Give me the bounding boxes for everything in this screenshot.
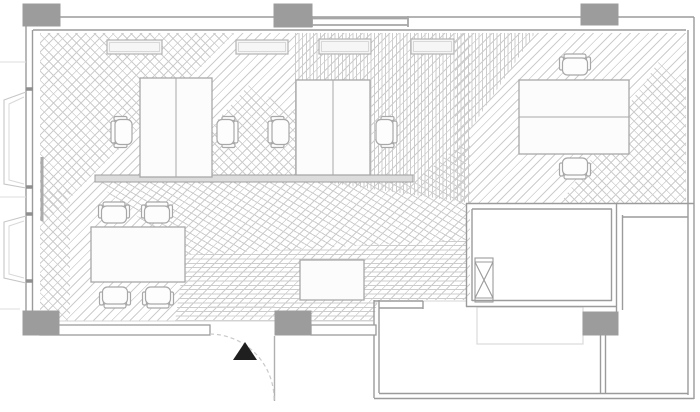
structural-column [275, 311, 311, 335]
plan-linework [0, 0, 700, 412]
chair-seat [145, 206, 170, 223]
chair-seat [376, 120, 393, 145]
stair-flight [477, 307, 583, 344]
chair-seat [272, 120, 289, 145]
chair-seat [217, 120, 234, 145]
chair-seat [146, 287, 171, 304]
structural-column [581, 4, 618, 25]
structural-column [23, 4, 60, 26]
wall-segment [311, 325, 376, 335]
task-chair [560, 54, 591, 75]
task-chair [100, 287, 131, 308]
structural-column [583, 312, 618, 335]
task-chair [217, 117, 238, 148]
office-floor-plan [0, 0, 700, 412]
entrance-door-swing-arc [210, 334, 274, 401]
task-chair [143, 287, 174, 308]
structural-column [23, 311, 59, 335]
task-chair [376, 117, 397, 148]
structural-column [274, 4, 312, 27]
chair-seat [115, 120, 132, 145]
task-chair [99, 202, 130, 223]
window-casement-outer [4, 92, 26, 188]
window-casement-outer [4, 216, 26, 283]
task-chair [142, 202, 173, 223]
chair-seat [563, 158, 588, 175]
chair-seat [102, 206, 127, 223]
task-chair [268, 117, 289, 148]
window-casement-inner [9, 221, 24, 278]
chair-seat [103, 287, 128, 304]
meeting-table [91, 227, 185, 282]
window-casement-inner [9, 97, 24, 184]
wall-segment [40, 325, 210, 335]
chair-seat [563, 58, 588, 75]
task-chair [111, 117, 132, 148]
task-chair [560, 158, 591, 179]
entrance-marker-triangle [233, 342, 257, 360]
sideboard [300, 260, 364, 300]
